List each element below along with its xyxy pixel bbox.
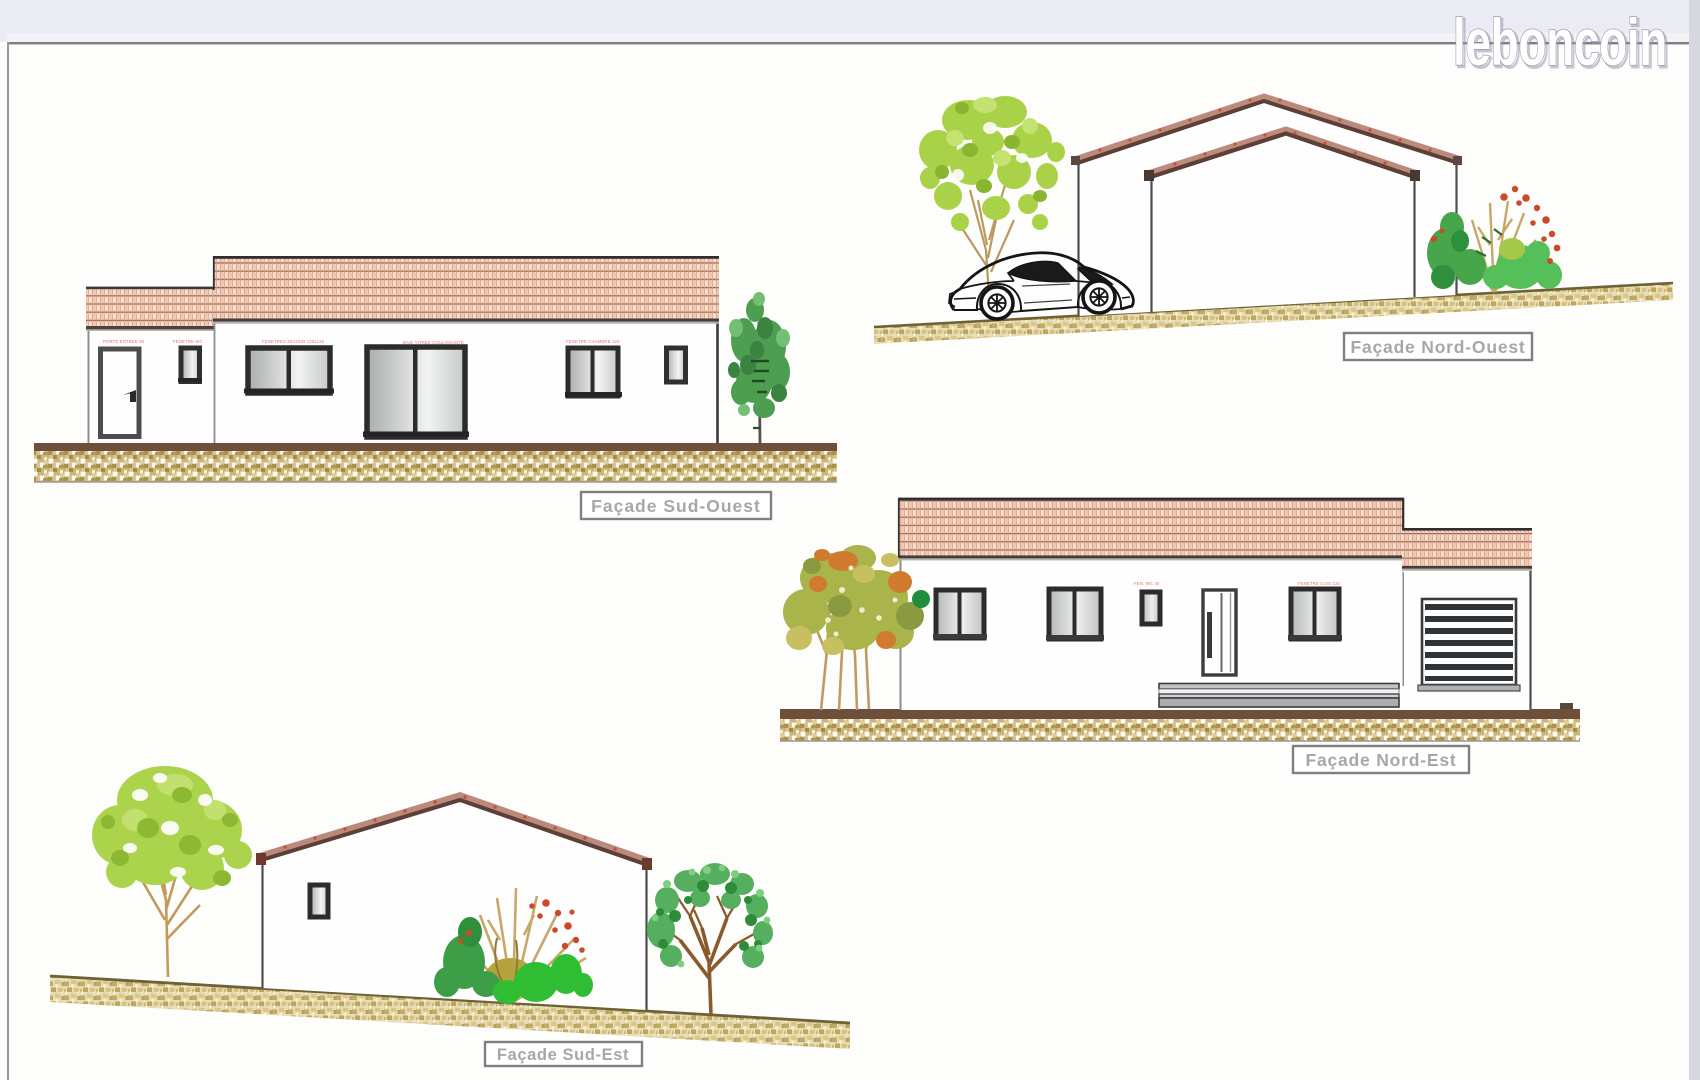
svg-text:Façade Nord-Ouest: Façade Nord-Ouest — [1350, 337, 1525, 357]
svg-text:FENETRES SEJOUR 120x115: FENETRES SEJOUR 120x115 — [262, 339, 324, 344]
svg-text:Façade Sud-Est: Façade Sud-Est — [497, 1046, 629, 1064]
svg-text:FENETRE CUIS 120: FENETRE CUIS 120 — [1298, 581, 1341, 586]
svg-text:FENETRE CHAMBRE 120: FENETRE CHAMBRE 120 — [566, 339, 620, 344]
svg-text:Façade Nord-Est: Façade Nord-Est — [1305, 750, 1456, 770]
svg-text:FENETRE WC: FENETRE WC — [173, 339, 203, 344]
svg-text:PORTE ENTREE 90: PORTE ENTREE 90 — [103, 339, 145, 344]
svg-text:Façade Sud-Ouest: Façade Sud-Ouest — [591, 496, 761, 516]
svg-text:FEN. WC 40: FEN. WC 40 — [1134, 581, 1160, 586]
svg-text:leboncoin: leboncoin — [1453, 5, 1667, 79]
